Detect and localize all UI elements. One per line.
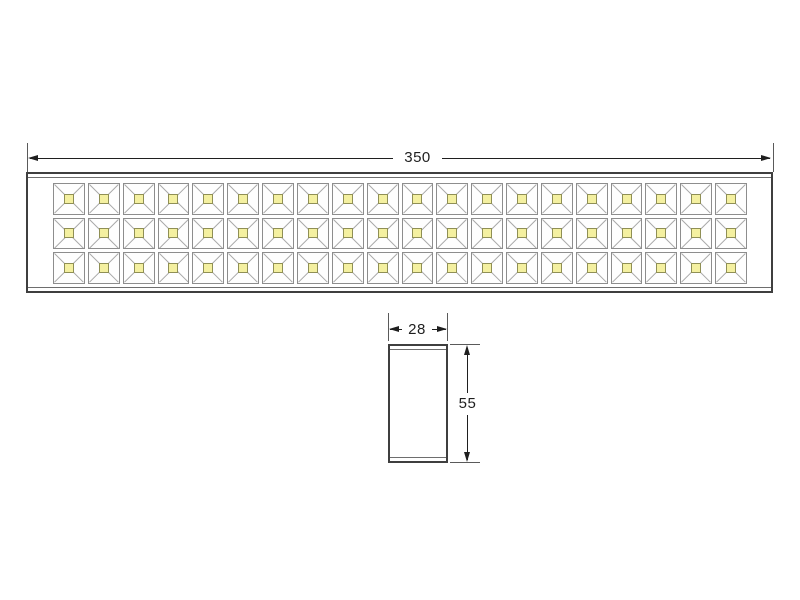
led-chip bbox=[273, 228, 283, 238]
arrowhead-up-icon bbox=[464, 345, 470, 355]
led-cell bbox=[645, 252, 677, 284]
led-cell bbox=[332, 218, 364, 250]
led-chip bbox=[238, 263, 248, 273]
led-chip bbox=[622, 263, 632, 273]
led-chip bbox=[99, 263, 109, 273]
led-chip bbox=[447, 194, 457, 204]
arrowhead-right-icon bbox=[437, 326, 447, 332]
led-cell bbox=[576, 218, 608, 250]
led-chip bbox=[273, 194, 283, 204]
led-cell bbox=[88, 183, 120, 215]
led-cell bbox=[715, 183, 747, 215]
led-cell bbox=[227, 252, 259, 284]
led-cell bbox=[262, 252, 294, 284]
led-chip bbox=[203, 228, 213, 238]
led-cell bbox=[123, 252, 155, 284]
led-cell bbox=[262, 183, 294, 215]
technical-drawing-canvas: 350 28 55 bbox=[0, 0, 800, 600]
led-chip bbox=[691, 228, 701, 238]
led-cell bbox=[541, 183, 573, 215]
led-chip bbox=[238, 194, 248, 204]
led-cell bbox=[297, 252, 329, 284]
led-chip bbox=[343, 228, 353, 238]
led-chip bbox=[412, 194, 422, 204]
led-cell bbox=[471, 252, 503, 284]
led-cell bbox=[227, 218, 259, 250]
led-cell bbox=[158, 252, 190, 284]
led-cell bbox=[192, 252, 224, 284]
led-cell bbox=[436, 183, 468, 215]
led-chip bbox=[99, 228, 109, 238]
length-dimension-line-right-segment bbox=[442, 158, 770, 159]
led-cell bbox=[88, 218, 120, 250]
led-cell bbox=[53, 183, 85, 215]
led-chip bbox=[238, 228, 248, 238]
led-cell bbox=[680, 183, 712, 215]
arrowhead-left-icon bbox=[389, 326, 399, 332]
led-chip bbox=[64, 228, 74, 238]
led-cell bbox=[611, 183, 643, 215]
height-extension-line-bottom bbox=[450, 462, 480, 463]
led-cell bbox=[436, 252, 468, 284]
led-cell bbox=[158, 183, 190, 215]
led-chip bbox=[482, 228, 492, 238]
led-chip bbox=[726, 228, 736, 238]
led-cell bbox=[367, 183, 399, 215]
led-chip bbox=[622, 194, 632, 204]
led-cell bbox=[123, 218, 155, 250]
height-dimension-label: 55 bbox=[453, 396, 482, 411]
led-chip bbox=[552, 194, 562, 204]
led-grid bbox=[53, 183, 747, 284]
led-chip bbox=[378, 263, 388, 273]
led-chip bbox=[587, 194, 597, 204]
led-cell bbox=[506, 183, 538, 215]
led-cell bbox=[611, 252, 643, 284]
led-chip bbox=[587, 263, 597, 273]
led-cell bbox=[297, 218, 329, 250]
led-chip bbox=[99, 194, 109, 204]
led-cell bbox=[192, 218, 224, 250]
side-inner-bottom-line bbox=[390, 457, 446, 458]
led-cell bbox=[402, 218, 434, 250]
length-extension-line-right bbox=[773, 143, 774, 172]
led-cell bbox=[611, 218, 643, 250]
led-cell bbox=[367, 218, 399, 250]
led-cell bbox=[680, 218, 712, 250]
led-cell bbox=[123, 183, 155, 215]
led-cell bbox=[541, 252, 573, 284]
led-cell bbox=[576, 252, 608, 284]
led-bar-side-view bbox=[388, 344, 448, 463]
led-chip bbox=[726, 194, 736, 204]
led-chip bbox=[517, 228, 527, 238]
length-dimension-label: 350 bbox=[393, 150, 442, 165]
led-chip bbox=[656, 228, 666, 238]
led-chip bbox=[378, 228, 388, 238]
led-chip bbox=[168, 263, 178, 273]
led-chip bbox=[691, 194, 701, 204]
led-chip bbox=[273, 263, 283, 273]
led-chip bbox=[482, 194, 492, 204]
led-chip bbox=[517, 194, 527, 204]
led-chip bbox=[622, 228, 632, 238]
led-chip bbox=[482, 263, 492, 273]
led-cell bbox=[53, 252, 85, 284]
led-cell bbox=[645, 183, 677, 215]
led-chip bbox=[447, 263, 457, 273]
led-chip bbox=[203, 263, 213, 273]
arrowhead-down-icon bbox=[464, 452, 470, 462]
led-cell bbox=[645, 218, 677, 250]
led-cell bbox=[53, 218, 85, 250]
led-chip bbox=[656, 194, 666, 204]
led-cell bbox=[402, 252, 434, 284]
led-chip bbox=[134, 194, 144, 204]
led-cell bbox=[576, 183, 608, 215]
led-chip bbox=[168, 194, 178, 204]
led-cell bbox=[88, 252, 120, 284]
arrowhead-right-icon bbox=[761, 155, 771, 161]
led-chip bbox=[691, 263, 701, 273]
led-cell bbox=[227, 183, 259, 215]
led-cell bbox=[158, 218, 190, 250]
led-bar-front-view bbox=[26, 172, 773, 293]
led-chip bbox=[412, 228, 422, 238]
led-cell bbox=[541, 218, 573, 250]
led-chip bbox=[343, 194, 353, 204]
bar-inner-top-line bbox=[28, 177, 771, 178]
led-chip bbox=[726, 263, 736, 273]
led-chip bbox=[656, 263, 666, 273]
led-cell bbox=[471, 218, 503, 250]
led-chip bbox=[134, 228, 144, 238]
led-chip bbox=[378, 194, 388, 204]
led-cell bbox=[436, 218, 468, 250]
led-chip bbox=[412, 263, 422, 273]
led-cell bbox=[506, 252, 538, 284]
led-cell bbox=[402, 183, 434, 215]
led-chip bbox=[134, 263, 144, 273]
led-chip bbox=[308, 263, 318, 273]
led-chip bbox=[64, 194, 74, 204]
led-cell bbox=[715, 218, 747, 250]
led-cell bbox=[332, 183, 364, 215]
led-chip bbox=[447, 228, 457, 238]
led-cell bbox=[192, 183, 224, 215]
led-chip bbox=[308, 228, 318, 238]
led-chip bbox=[203, 194, 213, 204]
led-chip bbox=[517, 263, 527, 273]
led-cell bbox=[471, 183, 503, 215]
led-cell bbox=[367, 252, 399, 284]
arrowhead-left-icon bbox=[28, 155, 38, 161]
led-chip bbox=[168, 228, 178, 238]
led-cell bbox=[297, 183, 329, 215]
led-chip bbox=[343, 263, 353, 273]
led-cell bbox=[680, 252, 712, 284]
width-extension-line-right bbox=[447, 313, 448, 341]
led-cell bbox=[262, 218, 294, 250]
led-chip bbox=[587, 228, 597, 238]
bar-inner-bottom-line bbox=[28, 287, 771, 288]
led-chip bbox=[64, 263, 74, 273]
led-chip bbox=[552, 263, 562, 273]
led-cell bbox=[332, 252, 364, 284]
led-cell bbox=[715, 252, 747, 284]
length-dimension-line-left-segment bbox=[30, 158, 393, 159]
led-chip bbox=[308, 194, 318, 204]
width-dimension-label: 28 bbox=[402, 322, 432, 337]
side-inner-top-line bbox=[390, 349, 446, 350]
led-chip bbox=[552, 228, 562, 238]
led-cell bbox=[506, 218, 538, 250]
